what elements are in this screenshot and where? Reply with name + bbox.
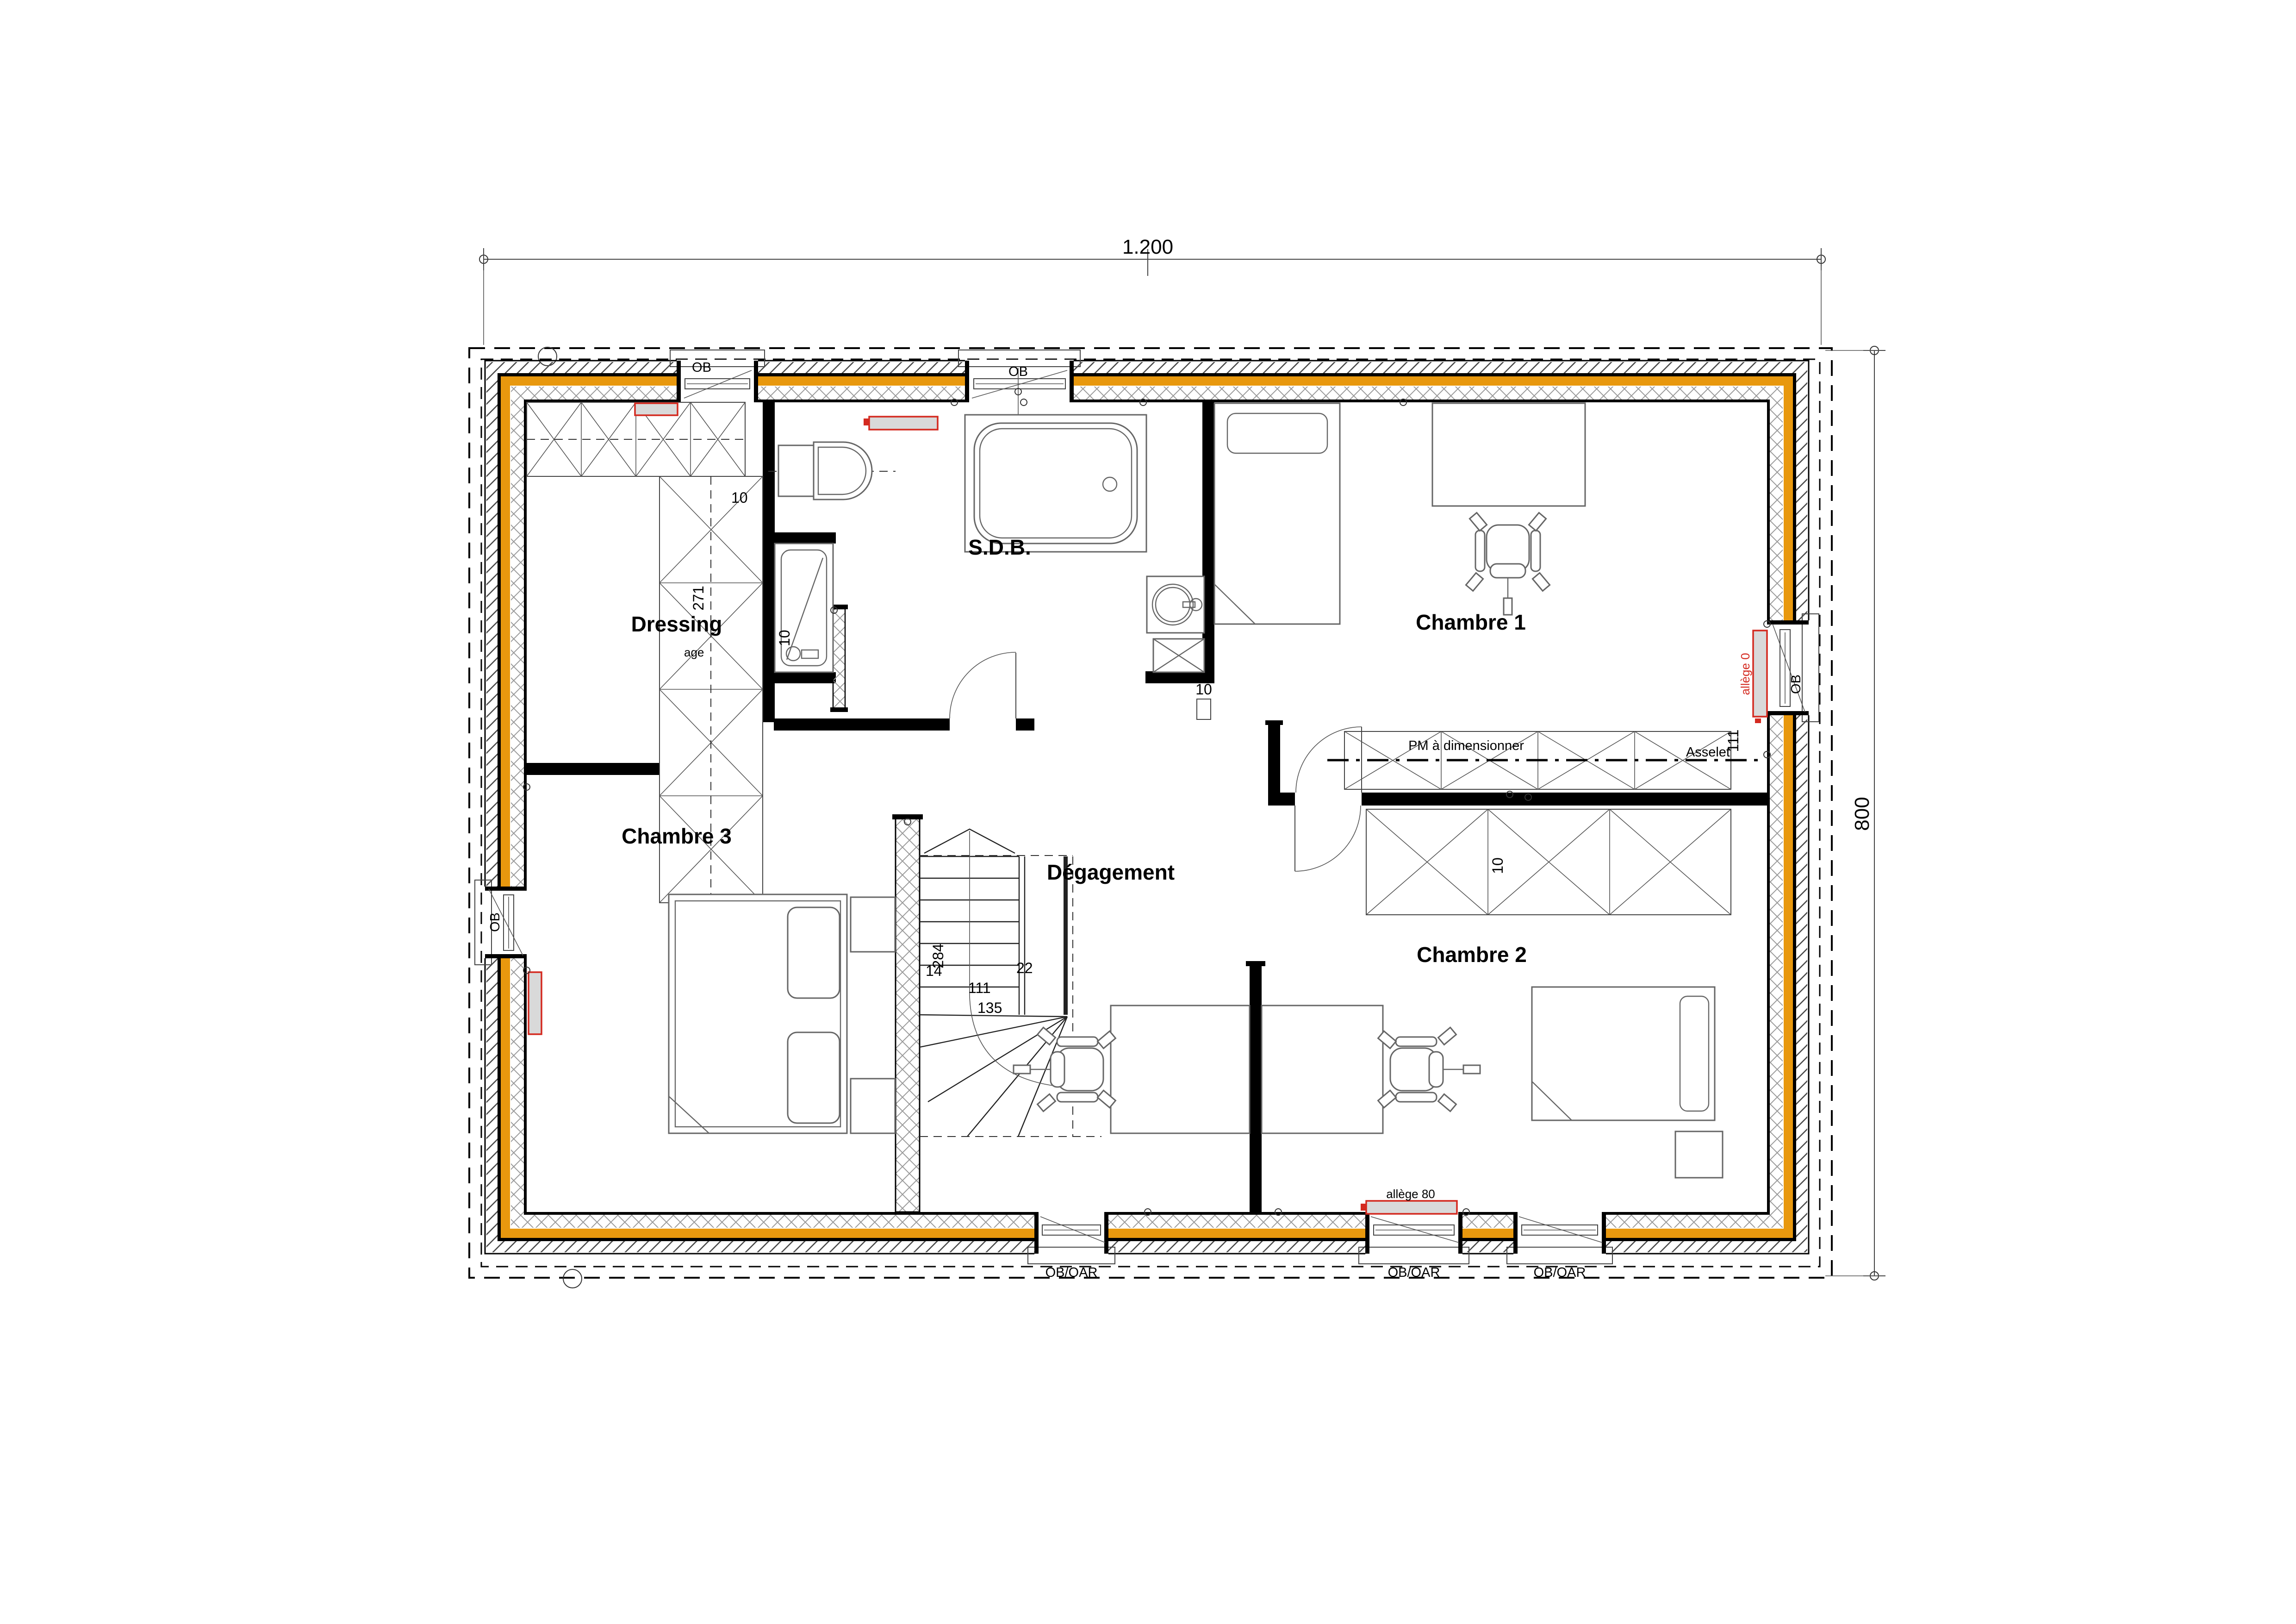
bed-chambre3 <box>669 894 847 1133</box>
degagement-desks <box>1014 1006 1480 1133</box>
shower-10-label: 10 <box>776 630 793 646</box>
wall-dressing-sdb <box>763 402 775 722</box>
dressing-271: 271 <box>690 586 707 610</box>
dim-height-label: 800 <box>1851 797 1873 831</box>
door-sdb <box>950 652 1016 718</box>
window-right-label: OB <box>1789 675 1804 694</box>
bathtub <box>965 415 1146 552</box>
dressing-age: age <box>684 645 704 659</box>
wall-corridor-stub-cap <box>1265 720 1283 725</box>
window-bottom-1-label: OB/OAR <box>1045 1265 1098 1280</box>
window-top-1-label: OB <box>692 360 711 375</box>
wall-corridor-stub <box>1268 724 1280 806</box>
radiator-dressing <box>635 403 678 415</box>
door-frame-10: 10 <box>1195 681 1212 719</box>
bed-chambre3-pillow-2 <box>788 1032 840 1123</box>
radiator-sdb <box>869 417 938 430</box>
window-left: OB <box>475 880 528 965</box>
asselet-label: Asselet <box>1686 745 1730 760</box>
window-right: OB <box>1766 614 1819 722</box>
window-bottom-2: OB/OAR <box>1359 1211 1469 1280</box>
dimension-top: 1.200 <box>479 236 1825 345</box>
stair-284: 284 <box>930 943 946 968</box>
wardrobe-10: 10 <box>1489 857 1506 874</box>
radiator-chambre1 <box>1753 631 1767 717</box>
bed-chambre1 <box>1214 403 1340 624</box>
dressing-10: 10 <box>731 489 748 506</box>
room-label-chambre2: Chambre 2 <box>1417 943 1527 967</box>
shower: 10 <box>775 543 833 672</box>
toilet <box>768 442 896 500</box>
desk-chambre1 <box>1432 403 1585 506</box>
nightstand-chambre3-top <box>851 897 895 952</box>
radiator-chambre2 <box>1366 1201 1457 1214</box>
window-bottom-3: OB/OAR <box>1507 1211 1612 1280</box>
chambre3-furniture <box>669 894 895 1133</box>
room-label-chambre1: Chambre 1 <box>1416 610 1526 634</box>
desk-left <box>1111 1006 1250 1133</box>
chair-desk-right <box>1378 1027 1480 1111</box>
dimension-right: 800 <box>1825 346 1885 1280</box>
stair-shaft-wall <box>896 818 920 1212</box>
radiator-chambre3 <box>529 972 541 1034</box>
radiator-chambre2-label: allège 80 <box>1386 1187 1435 1201</box>
wall-dressing-chambre3 <box>527 763 660 775</box>
room-label-sdb: S.D.B. <box>968 535 1031 559</box>
wall-pier-cap-bottom <box>830 707 848 712</box>
wall-sdb-south <box>774 718 950 731</box>
chair-chambre1 <box>1466 513 1549 615</box>
wall-chambre1-chambre2-b <box>1362 793 1767 806</box>
pm-label: PM à dimensionner <box>1408 738 1524 753</box>
washing-machine <box>1153 639 1204 672</box>
outer-dashed-boundary <box>469 348 1832 1278</box>
wall-desk-partition-cap <box>1246 961 1265 966</box>
radiator-chambre1-label: allège 0 <box>1738 653 1752 695</box>
room-label-chambre3: Chambre 3 <box>622 824 732 848</box>
wall-shower-south <box>775 672 836 683</box>
bed-chambre3-pillow-1 <box>788 907 840 998</box>
room-label-degagement: Dégagement <box>1047 860 1175 884</box>
door-10-label: 10 <box>1195 681 1212 698</box>
dim-width-label: 1.200 <box>1122 236 1173 258</box>
window-bottom-1: OB/OAR <box>1028 1211 1115 1280</box>
chambre1-furniture <box>1214 403 1585 624</box>
wardrobe-row-upper: PM à dimensionner Asselet 111 <box>1327 730 1759 800</box>
window-bottom-2-label: OB/OAR <box>1388 1265 1440 1280</box>
window-bottom-3-label: OB/OAR <box>1534 1265 1586 1280</box>
nightstand-chambre2 <box>1675 1131 1723 1178</box>
wardrobe-row-lower: 10 <box>1366 809 1731 915</box>
bed-chambre2 <box>1532 987 1715 1120</box>
wall-sdb-south-stub <box>1016 718 1034 731</box>
desk-right <box>1262 1006 1383 1133</box>
stair-22: 22 <box>1016 960 1033 976</box>
wall-desk-partition <box>1250 965 1262 1212</box>
wall-shower-north <box>775 532 836 543</box>
roof-outline <box>469 347 1832 1288</box>
washbasin <box>1147 576 1204 633</box>
window-top-2-label: OB <box>1008 364 1028 379</box>
chambre2-furniture <box>1532 987 1723 1178</box>
room-label-dressing: Dressing <box>631 612 722 636</box>
stair-135: 135 <box>977 999 1002 1016</box>
wall-sdb-chambre1 <box>1202 402 1214 676</box>
door-chambre2 <box>1295 806 1361 871</box>
stair-111: 111 <box>968 980 991 996</box>
window-top-1: OB <box>670 350 765 403</box>
wardrobe-111: 111 <box>1725 730 1742 752</box>
window-left-label: OB <box>488 912 503 932</box>
nightstand-chambre3-bottom <box>851 1079 895 1133</box>
wall-pier-crosshatch <box>833 609 845 708</box>
floor-plan-drawing: 1.200 800 OB OB a <box>0 0 2296 1624</box>
floor-plan-page: 1.200 800 OB OB a <box>0 0 2296 1624</box>
